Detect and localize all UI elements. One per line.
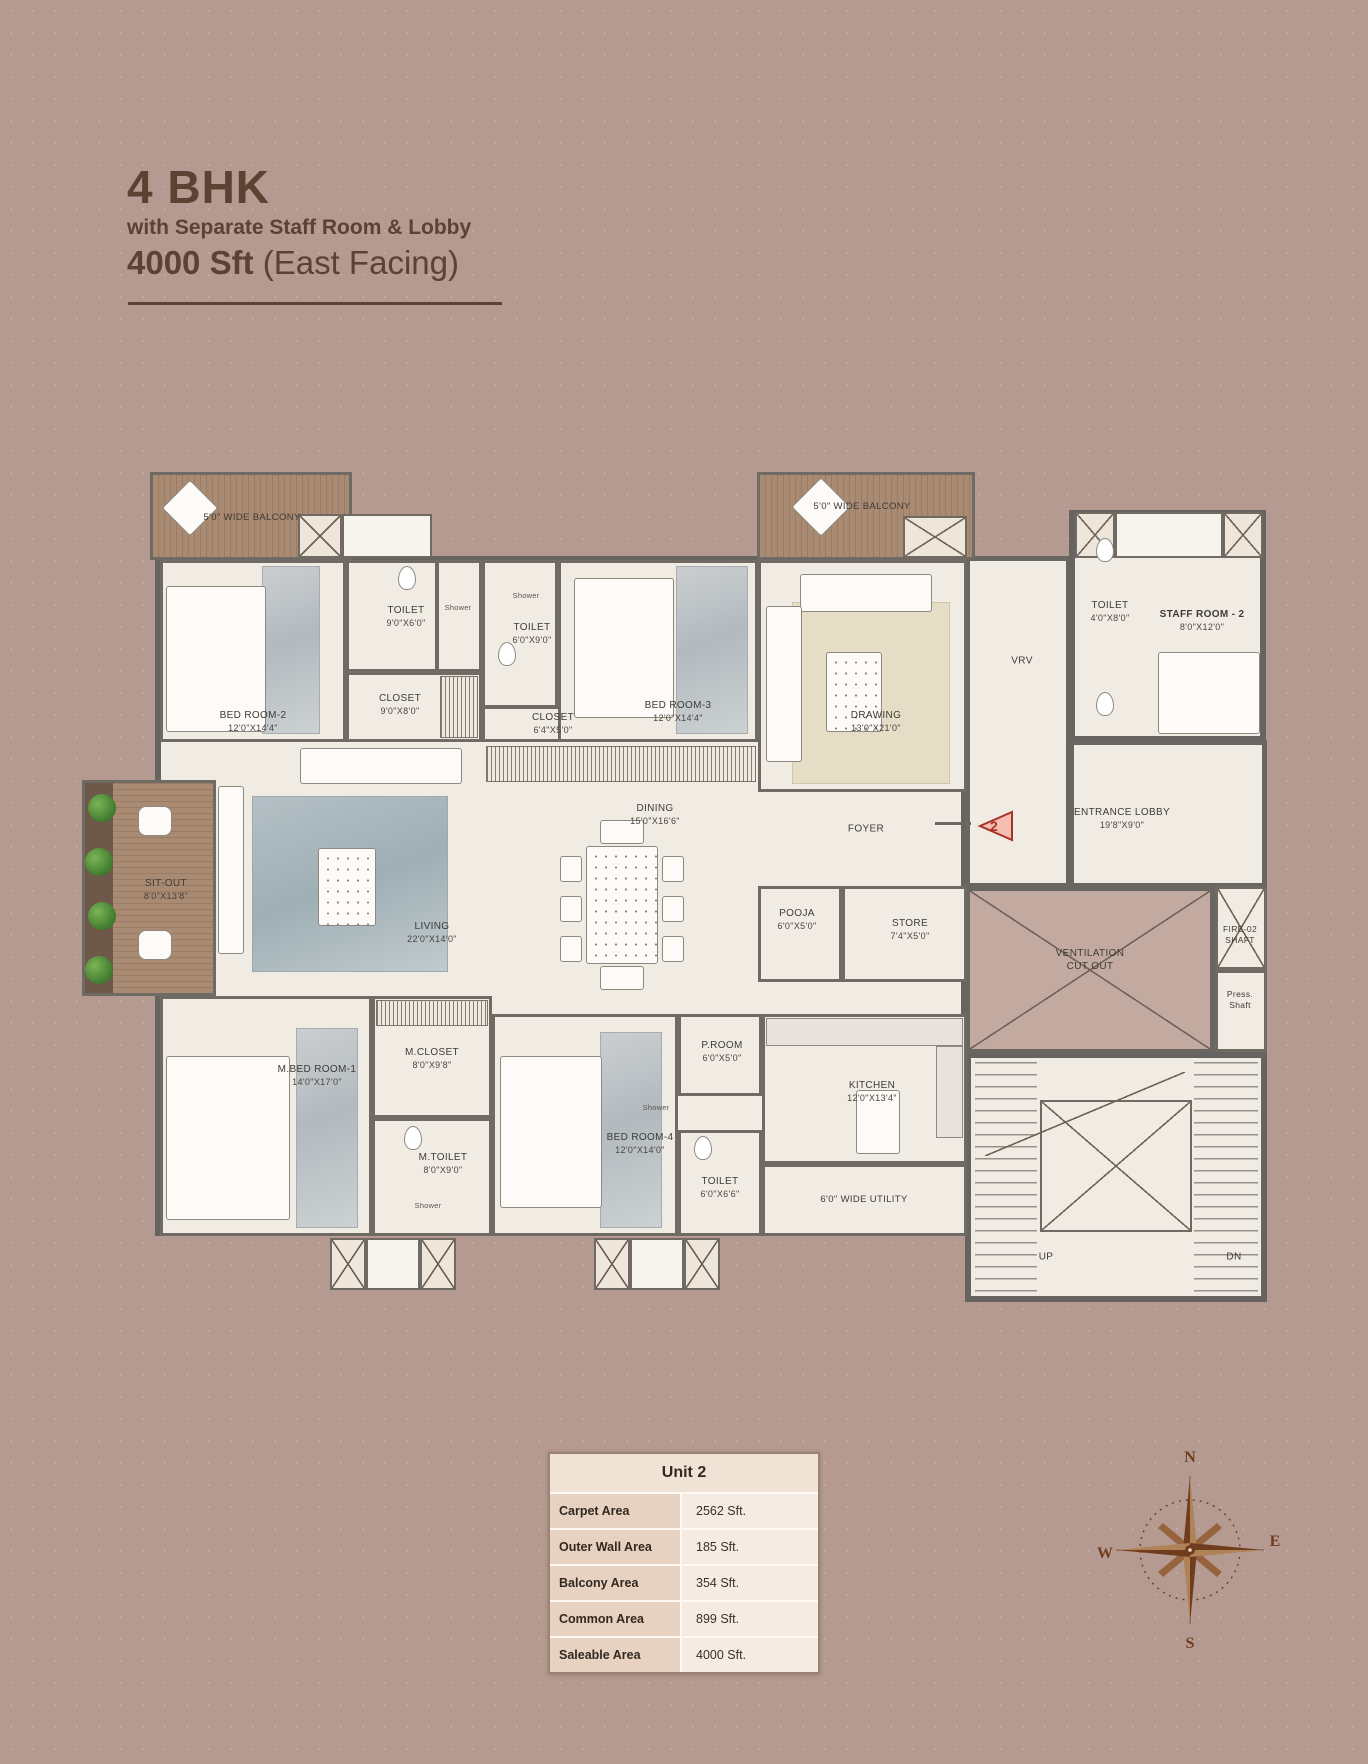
compass-star-icon [1095,1442,1285,1662]
compass-east-label: E [1270,1533,1281,1551]
vrv-label: VRV [1011,656,1032,669]
master-shower-label: Shower [415,1201,442,1211]
toilet-wc-icon [1096,692,1114,716]
sit-out-label: SIT-OUT8'0"X13'8" [144,878,188,902]
toilet3-label: TOILET6'0"X9'0" [512,622,551,646]
area-row-value: 899 Sft. [682,1602,818,1636]
unit2-table-header: Unit 2 [550,1454,818,1494]
column-box-icon [298,514,342,558]
chair [600,966,644,990]
stairs-dn-label: DN [1226,1252,1241,1265]
master-toilet-room [372,1118,492,1236]
column-box-icon [594,1238,630,1290]
shower3-label: Shower [513,591,540,601]
entry-door-line [935,822,971,825]
chair [662,936,684,962]
shower2-room [436,560,482,672]
dining-label: DINING15'0"X16'6" [630,803,680,827]
compass-south-label: S [1186,1635,1195,1653]
chair [560,936,582,962]
unit-2-marker-number: 2 [990,818,998,834]
toilet4-label: TOILET6'0"X6'6" [700,1176,739,1200]
chair [662,856,684,882]
tv-console [218,786,244,954]
area-row-label: Saleable Area [550,1638,682,1672]
table-row: Balcony Area 354 Sft. [550,1566,818,1602]
bed [1158,652,1260,734]
area-row-value: 4000 Sft. [682,1638,818,1672]
plant-icon [88,794,116,822]
master-toilet-label: M.TOILET8'0"X9'0" [419,1152,468,1176]
area-row-label: Carpet Area [550,1494,682,1528]
sofa [300,748,462,784]
stairs-up-label: UP [1039,1252,1054,1265]
area-row-label: Balcony Area [550,1566,682,1600]
compass-west-label: W [1097,1545,1113,1563]
column-box-icon [330,1238,366,1290]
plant-icon [88,902,116,930]
dining-table [586,846,658,964]
area-row-value: 354 Sft. [682,1566,818,1600]
shower2-label: Shower [445,603,472,613]
entrance-lobby-label: ENTRANCE LOBBY19'8"X9'0" [1074,807,1170,831]
staff-room-label: STAFF ROOM - 28'0"X12'0" [1160,609,1245,633]
coffee-table [318,848,376,926]
foyer-label: FOYER [848,824,884,837]
toilet-wc-icon [1096,538,1114,562]
bedroom2-label: BED ROOM-212'0"X14'4" [220,710,287,734]
balcony-right-label: 5'0" WIDE BALCONY [813,501,910,513]
plant-icon [85,848,113,876]
compass-north-label: N [1184,1449,1196,1467]
lounge-chair [138,806,172,836]
table-row: Saleable Area 4000 Sft. [550,1638,818,1672]
lounge-chair [138,930,172,960]
drawing-label: DRAWING13'0"X21'0" [851,710,901,734]
closet3-label: CLOSET6'4"X5'0" [532,712,574,736]
chair [560,896,582,922]
master-bedroom-label: M.BED ROOM-114'0"X17'0" [278,1064,357,1088]
duct-box [630,1238,684,1290]
bed [166,1056,290,1220]
area-row-value: 185 Sft. [682,1530,818,1564]
bed [574,578,674,718]
bedroom3-label: BED ROOM-312'0"X14'4" [645,700,712,724]
table-row: Common Area 899 Sft. [550,1602,818,1638]
table-row: Carpet Area 2562 Sft. [550,1494,818,1530]
column-box-icon [684,1238,720,1290]
fire-shaft-label: FIRE-02SHAFT [1223,924,1257,946]
duct-box [1115,512,1223,558]
toilet-wc-icon [694,1136,712,1160]
unit2-area-table: Unit 2 Carpet Area 2562 Sft. Outer Wall … [548,1452,820,1674]
chair [560,856,582,882]
pooja-room [758,886,842,982]
wardrobe-hatch [440,676,478,738]
stair-arrow-line [985,1072,1185,1156]
master-closet-label: M.CLOSET8'0"X9'8" [405,1047,459,1071]
wardrobe-hatch [486,746,756,782]
rug [262,566,320,734]
area-row-value: 2562 Sft. [682,1494,818,1528]
plant-icon [85,956,113,984]
closet2-label: CLOSET9'0"X8'0" [379,693,421,717]
duct-box [342,514,432,558]
rug [296,1028,358,1228]
table-row: Outer Wall Area 185 Sft. [550,1530,818,1566]
kitchen-counter [766,1018,963,1046]
compass-rose: N E S W [1095,1442,1285,1662]
bedroom4-label: BED ROOM-412'0"X14'0" [607,1132,674,1156]
kitchen-label: KITCHEN12'0"X13'4" [847,1080,897,1104]
wardrobe-hatch [376,1000,488,1026]
ventilation-label: VENTILATIONCUT OUT [1056,948,1125,974]
unit-2-marker: 2 [976,810,1014,842]
column-box-icon [1223,512,1263,558]
bed [500,1056,602,1208]
toilet2-label: TOILET9'0"X6'0" [386,605,425,629]
column-box-icon [903,516,967,558]
column-box-icon [420,1238,456,1290]
proom-label: P.ROOM6'0"X5'0" [701,1040,742,1064]
living-label: LIVING22'0"X14'0" [407,921,457,945]
duct-box [366,1238,420,1290]
rug [600,1032,662,1228]
area-row-label: Outer Wall Area [550,1530,682,1564]
shower4-label: Shower [643,1103,670,1113]
area-row-label: Common Area [550,1602,682,1636]
staff-toilet-label: TOILET4'0"X8'0" [1090,600,1129,624]
chair [662,896,684,922]
utility-label: 6'0" WIDE UTILITY [820,1194,907,1206]
kitchen-counter [936,1046,963,1138]
sofa [800,574,932,612]
balcony-left-label: 5'0" WIDE BALCONY [203,512,300,524]
pooja-label: POOJA6'0"X5'0" [777,908,816,932]
toilet-wc-icon [404,1126,422,1150]
toilet-wc-icon [398,566,416,590]
press-shaft-block [1215,970,1267,1052]
store-label: STORE7'4"X5'0" [890,918,929,942]
armchair-row [766,606,802,762]
press-shaft-label: Press.Shaft [1227,989,1253,1011]
